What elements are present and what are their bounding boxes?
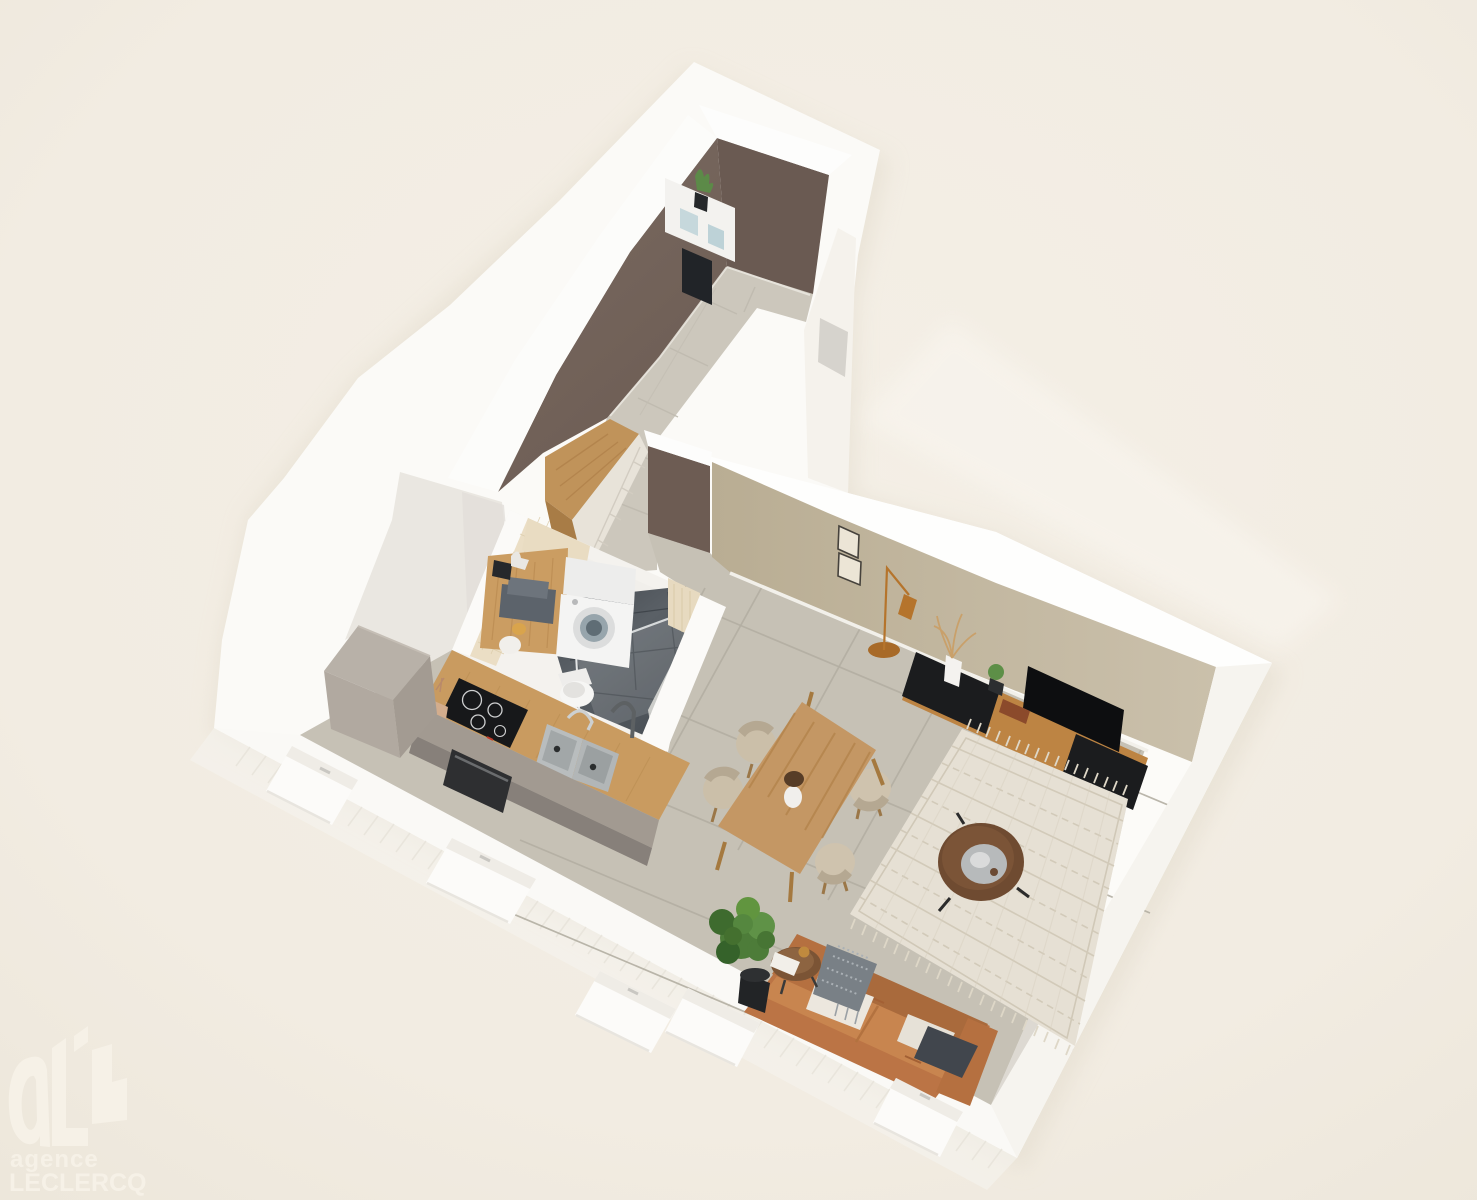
svg-text:LECLERCQ: LECLERCQ (9, 1169, 147, 1197)
